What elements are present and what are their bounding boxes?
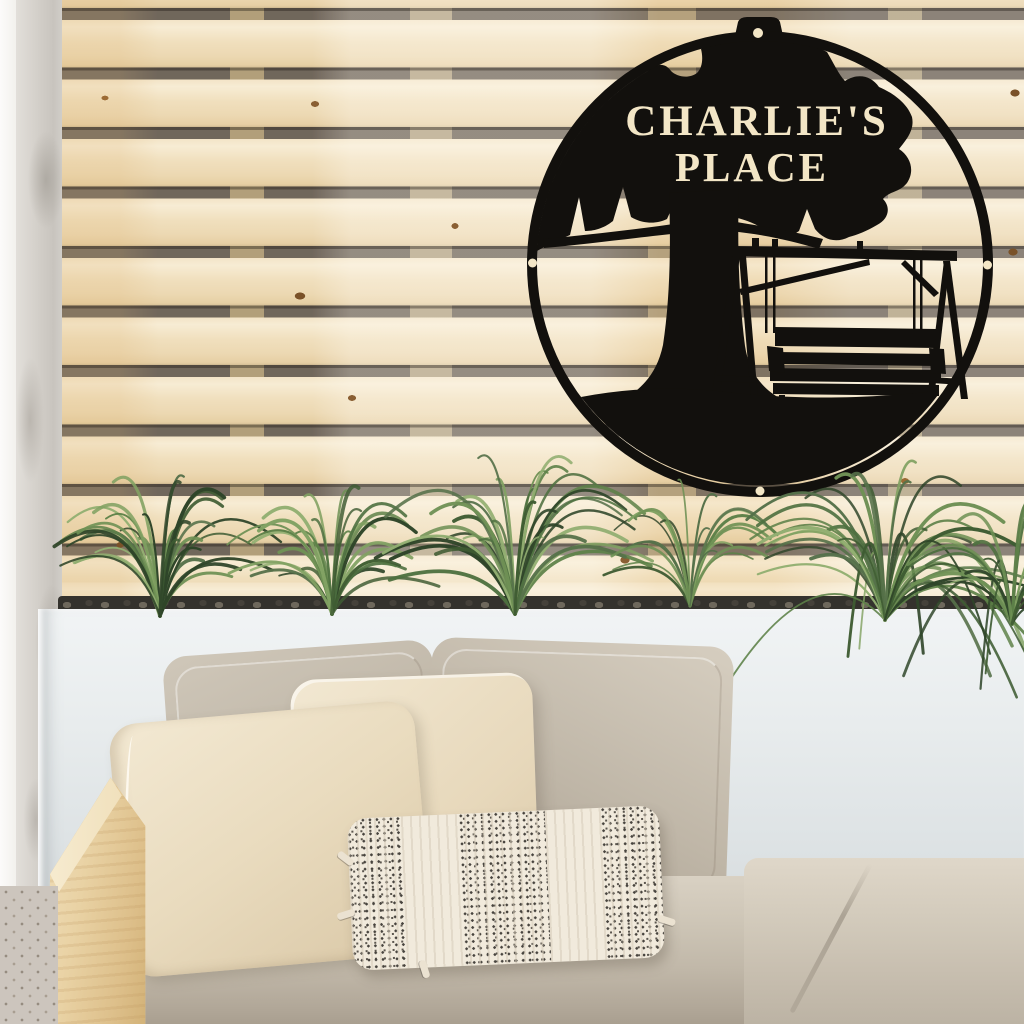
patio-scene: CHARLIE'S PLACE: [0, 0, 1024, 1024]
grass-clump: [604, 479, 777, 606]
grass-clump: [376, 455, 653, 614]
grass-clump: [54, 475, 281, 616]
floor-rug-corner: [0, 886, 58, 1024]
boucle-fringe: [347, 805, 665, 970]
boucle-lumbar-pillow: [347, 805, 665, 970]
seat-cushion-right: [744, 858, 1024, 1024]
grass-clump: [227, 486, 439, 614]
